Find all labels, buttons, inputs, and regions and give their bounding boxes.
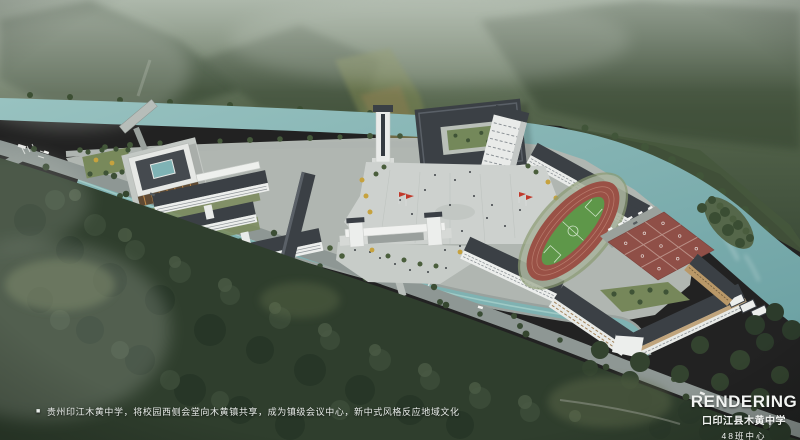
vignette xyxy=(0,0,800,440)
campus-rendering-scene xyxy=(0,0,800,440)
project-subtitle: 48班中心 xyxy=(686,430,800,440)
project-name: 口印江县木黄中学 xyxy=(686,412,800,427)
rendering-label: RENDERING xyxy=(686,393,800,411)
title-block: RENDERING 口印江县木黄中学 48班中心 xyxy=(686,393,800,440)
caption-text: 贵州印江木黄中学，将校园西侧会堂向木黄镇共享，成为镇级会议中心，新中式风格反应地… xyxy=(47,405,460,418)
rendering-image: ■ 贵州印江木黄中学，将校园西侧会堂向木黄镇共享，成为镇级会议中心，新中式风格反… xyxy=(0,0,800,440)
square-bullet-icon: ■ xyxy=(36,408,41,415)
caption: ■ 贵州印江木黄中学，将校园西侧会堂向木黄镇共享，成为镇级会议中心，新中式风格反… xyxy=(36,405,460,418)
